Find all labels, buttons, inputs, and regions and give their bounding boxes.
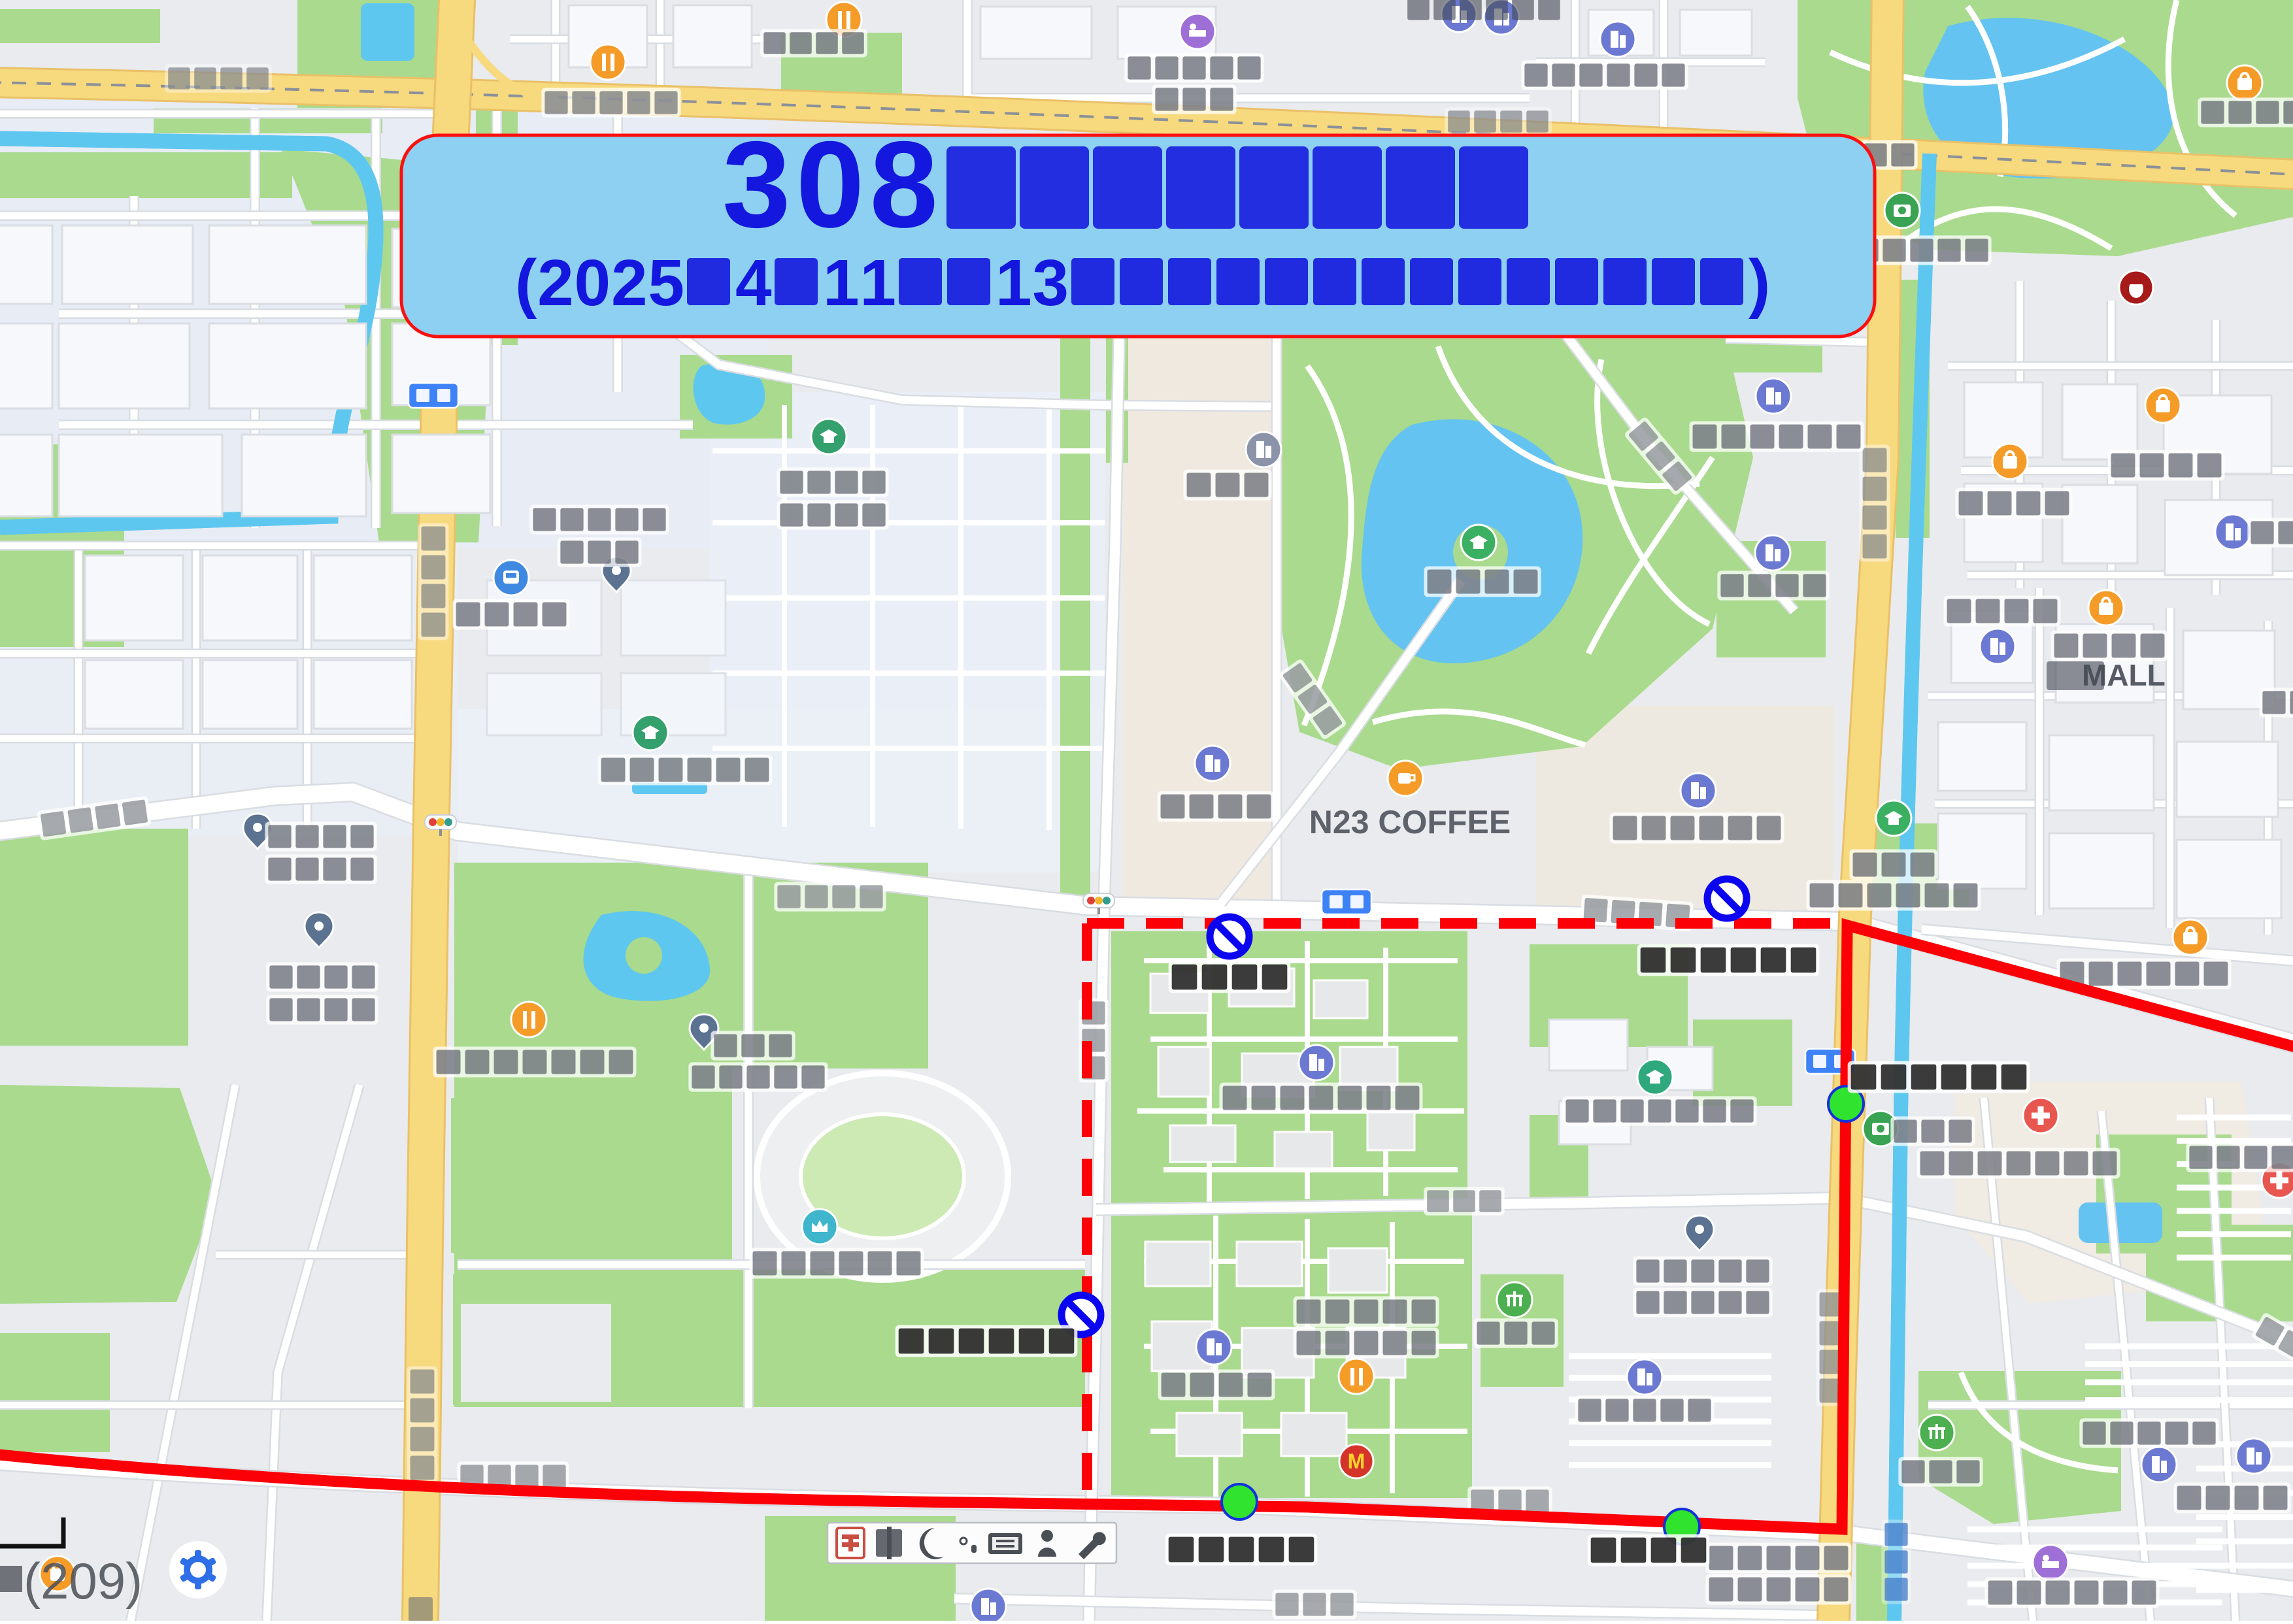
- svg-text:MALL: MALL: [2082, 658, 2166, 692]
- svg-text:(209): (209): [24, 1552, 142, 1610]
- svg-text:(2025: (2025: [515, 246, 684, 320]
- svg-text:11: 11: [823, 246, 896, 320]
- svg-text:4: 4: [735, 246, 772, 320]
- svg-text:): ): [1749, 246, 1770, 320]
- svg-text:N23 COFFEE: N23 COFFEE: [1309, 804, 1511, 840]
- svg-text:13: 13: [996, 246, 1069, 320]
- svg-text:M: M: [1348, 1450, 1365, 1473]
- svg-text:308: 308: [722, 116, 938, 253]
